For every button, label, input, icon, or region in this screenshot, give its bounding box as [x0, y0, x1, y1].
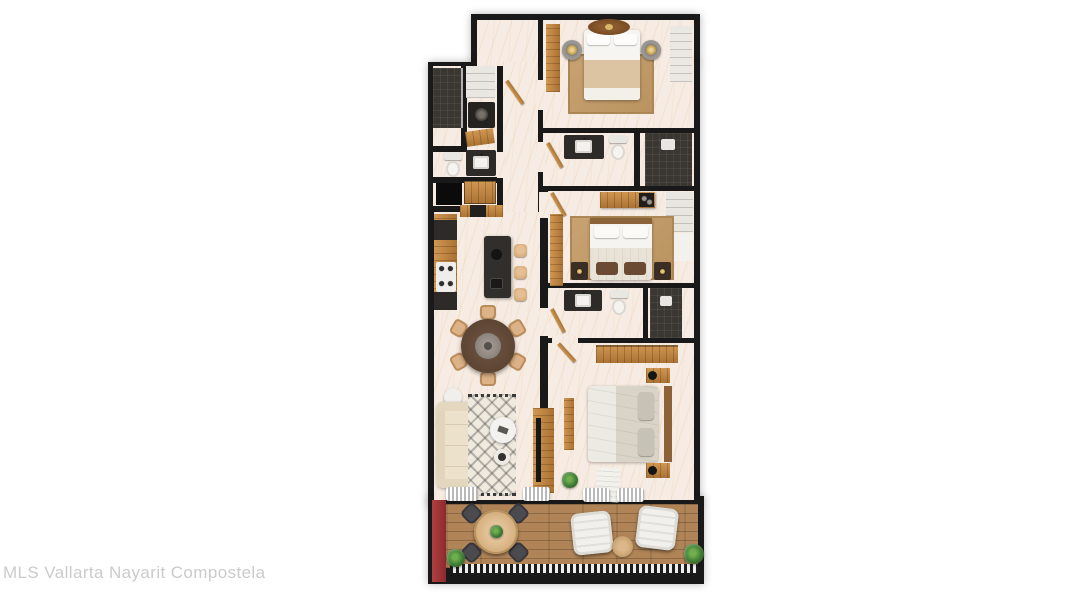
master-wardrobe: [546, 24, 560, 92]
door-gap-guest-bath: [495, 152, 505, 178]
tv: [536, 418, 541, 482]
bedroom3-closet: [596, 345, 678, 363]
living-rug: [468, 394, 516, 496]
kitchen-top-counter: [460, 205, 503, 217]
accent-table: [494, 449, 510, 465]
bedroom3-lamp-bottom: [648, 466, 657, 475]
bedroom3-pillow-top: [638, 392, 654, 420]
guest-shower: [433, 68, 463, 128]
dining-centerpiece-dot: [484, 342, 492, 350]
master-toilet: [609, 135, 627, 161]
lounge-chair-left: [570, 510, 614, 556]
living-curtain-right: [523, 487, 550, 501]
terrace-table: [474, 510, 518, 554]
bedroom2-cushion-left: [596, 262, 618, 275]
bathroom2-toilet-bowl: [612, 299, 626, 315]
living-curtain-left: [446, 487, 478, 501]
coffee-table-book: [497, 425, 508, 434]
sofa-armrest-top: [436, 402, 472, 411]
floorplan-image: MLS Vallarta Nayarit Compostela: [0, 0, 1067, 600]
kitchen-counter-dark-upper: [434, 220, 457, 240]
sofa-backrest: [436, 402, 445, 488]
master-blanket: [584, 60, 640, 88]
bedroom2-knob-right: [660, 269, 665, 274]
bathroom2-toilet: [610, 290, 628, 316]
bedroom3-bed: [588, 386, 672, 462]
master-closet-shelves: [670, 26, 692, 82]
linen-closet: [466, 66, 495, 98]
bathroom2-shower: [650, 288, 682, 338]
bedroom2-dresser: [600, 192, 655, 208]
guest-vanity: [466, 150, 496, 176]
stove: [436, 262, 456, 292]
bedroom3-curtain-right: [617, 488, 644, 502]
bedroom3-nightstand-top: [646, 368, 670, 383]
bedroom3-curtain-left: [583, 488, 610, 502]
bedroom3-nightstand-bottom: [646, 463, 670, 478]
bedroom2-headboard: [590, 218, 652, 224]
master-lamp-left: [567, 45, 577, 55]
bedroom2-pillow-left: [594, 226, 619, 238]
master-shower-tray: [661, 139, 675, 150]
bedroom2-knob-left: [577, 269, 582, 274]
terrace-plant-right: [684, 544, 704, 564]
bathroom2-toilet-tank: [610, 290, 628, 298]
master-nightstand-left: [562, 40, 582, 60]
door-gap-master-bath: [536, 142, 545, 172]
master-toilet-bowl: [611, 144, 625, 160]
kitchen-island: [484, 236, 511, 298]
washer-door: [475, 108, 488, 121]
guest-sink: [473, 156, 489, 169]
door-gap-bedroom3: [552, 336, 578, 344]
master-pillow-left: [587, 34, 610, 45]
terrace-side-table: [612, 536, 633, 557]
bedroom2-nightstand-right: [654, 262, 671, 280]
bar-stool-2: [514, 266, 527, 279]
guest-toilet-bowl: [446, 161, 460, 177]
island-sink: [490, 278, 503, 289]
bathroom2-shower-wall: [643, 288, 648, 338]
bedroom2-pillow-right: [623, 226, 648, 238]
kitchen-appliance: [470, 205, 486, 217]
bathroom2-sink: [575, 294, 591, 307]
master-lamp-right: [646, 45, 656, 55]
lounge-chair-right: [635, 505, 680, 552]
bedroom3-headboard: [664, 386, 672, 462]
master-pillow-right: [614, 34, 637, 45]
master-nightstand-right: [641, 40, 661, 60]
ceiling-fan: [588, 19, 630, 35]
dining-table: [461, 319, 515, 373]
terrace-railing: [450, 564, 698, 573]
master-sheet-fold: [584, 88, 640, 100]
master-toilet-tank: [609, 135, 627, 143]
bedroom3-pillow-bottom: [638, 428, 654, 456]
guest-toilet: [444, 152, 462, 178]
bathroom2-shower-tray: [660, 296, 672, 306]
master-shower: [645, 133, 692, 186]
terrace-table-plant: [490, 525, 503, 538]
accent-table-tray: [498, 453, 506, 461]
terrace-red-wall: [432, 500, 446, 582]
bedroom3-bench: [564, 398, 574, 450]
bedroom2-wardrobe: [550, 214, 563, 286]
master-vanity: [564, 135, 604, 159]
washer: [468, 102, 495, 128]
door-gap-bedroom2: [539, 192, 549, 218]
ceiling-fan-hub: [605, 24, 613, 30]
guest-toilet-tank: [444, 152, 462, 160]
kitchen-counter-dark-lower: [434, 292, 457, 310]
foyer-floor: [477, 20, 538, 66]
bedroom3-lamp-top: [648, 371, 657, 380]
sofa: [436, 402, 472, 488]
master-shower-wall: [634, 133, 640, 186]
dining-chair-4: [480, 371, 496, 386]
bar-stool-3: [514, 288, 527, 301]
bedroom2-nightstand-left: [571, 262, 588, 280]
laundry-closet-doors: [464, 181, 496, 204]
bathroom2-vanity: [564, 290, 602, 311]
door-gap-bathroom2: [539, 308, 549, 336]
bedroom2-dresser-tray: [639, 193, 654, 207]
terrace-plant-left: [447, 549, 465, 567]
laundry-closet-dark: [436, 183, 462, 205]
bedroom2-bed: [590, 218, 652, 280]
bedroom3-plant: [562, 472, 578, 488]
watermark-text: MLS Vallarta Nayarit Compostela: [3, 563, 265, 583]
coffee-table: [490, 417, 516, 443]
door-gap-master: [536, 80, 545, 110]
island-bowl: [491, 249, 502, 260]
dining-chair-1: [480, 305, 496, 320]
bedroom2-cushion-right: [624, 262, 646, 275]
bar-stool-1: [514, 244, 527, 257]
master-sink: [575, 140, 592, 153]
tv-console: [533, 408, 554, 493]
master-bed: [584, 30, 640, 100]
